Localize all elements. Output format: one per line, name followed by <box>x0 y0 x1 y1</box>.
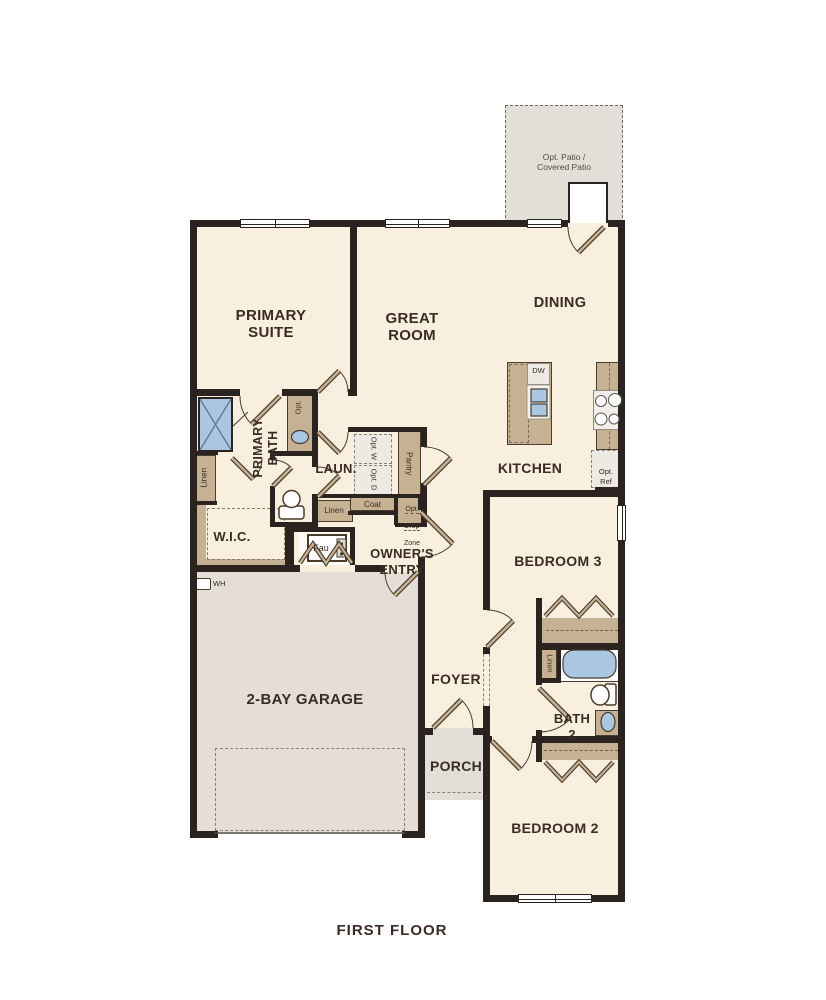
pantry-label: Pantry <box>404 434 413 494</box>
bifold-bedroom2-closet <box>545 762 613 780</box>
patio-label: Opt. Patio /Covered Patio <box>505 142 623 172</box>
span: 2 <box>568 727 576 742</box>
linen-bath2-label: Linen <box>545 646 554 680</box>
panel <box>318 371 339 392</box>
toilet-primary <box>279 491 304 520</box>
span: GREAT <box>386 310 439 327</box>
span: ENTRY <box>379 562 424 577</box>
panel <box>424 458 451 485</box>
opt-w-label: Opt. W <box>369 433 378 463</box>
primary-suite-label: PRIMARYSUITE <box>191 289 351 342</box>
span: Opt. <box>599 467 613 476</box>
span: PRIMARY <box>236 307 307 324</box>
chev-o <box>545 598 613 616</box>
kitchen-sink <box>527 385 550 419</box>
arc <box>568 227 579 253</box>
panel <box>318 476 339 497</box>
door-primary-suite <box>318 371 348 392</box>
door-front <box>433 700 473 728</box>
door-patio <box>568 227 604 253</box>
bifold-bedroom3-closet <box>545 598 613 616</box>
opt-d-label: Opt. D <box>369 464 378 494</box>
span: SUITE <box>248 324 294 341</box>
linen-primary-label: Linen <box>199 458 208 498</box>
span: BATH <box>266 431 280 466</box>
span: BATH <box>554 711 590 726</box>
dw-label: DW <box>527 367 550 376</box>
span: Zone <box>404 540 420 547</box>
bath2-label: BATH2 <box>532 696 612 742</box>
wh-label: WH <box>213 580 233 589</box>
span: Covered Patio <box>537 162 591 172</box>
primary-bath-label: PRIMARYBATH <box>236 388 268 508</box>
great-room-label: GREATROOM <box>352 292 472 345</box>
foyer-label: FOYER <box>406 671 506 688</box>
arc <box>424 447 451 458</box>
door-laundry <box>318 432 348 453</box>
opt-ref-label: Opt.Ref <box>591 458 621 486</box>
fau-label: Fau <box>308 543 334 554</box>
sink-primary-vanity <box>292 431 309 444</box>
coat-label: Coat <box>350 500 395 509</box>
door-bedroom3 <box>487 610 513 647</box>
arc <box>487 610 513 621</box>
cooktop-burners <box>595 394 622 426</box>
laundry-label: LAUN. <box>306 461 366 476</box>
door-pantry <box>424 447 451 485</box>
floor-plan-page: Opt. Patio /Covered Patio PRIMARYSUITE G… <box>0 0 826 1000</box>
span: Ref <box>600 477 612 486</box>
arc <box>461 700 473 728</box>
circle <box>609 394 622 407</box>
span: ROOM <box>388 327 436 344</box>
opt-vanity-label: Opt. <box>295 392 304 422</box>
span: Opt. Patio / <box>543 152 586 162</box>
bedroom3-label: BEDROOM 3 <box>478 553 638 570</box>
kitchen-label: KITCHEN <box>470 460 590 477</box>
linen-hall-label: Linen <box>315 506 353 515</box>
dining-label: DINING <box>500 295 620 312</box>
first-floor-title: FIRST FLOOR <box>292 922 492 940</box>
panel <box>487 621 513 647</box>
tub-basin <box>563 650 616 678</box>
chev-o <box>545 762 613 780</box>
span: PRIMARY <box>251 418 265 477</box>
porch-label: PORCH <box>406 758 506 775</box>
drop-zone-label: Opt. Drop Zone <box>397 498 427 548</box>
circle <box>609 414 619 424</box>
bedroom2-label: BEDROOM 2 <box>475 820 635 837</box>
span: Opt. <box>405 506 418 514</box>
panel <box>273 468 291 486</box>
arc <box>520 741 532 769</box>
fixt <box>283 491 300 508</box>
panel <box>579 227 605 253</box>
garage-label: 2-BAY GARAGE <box>205 691 405 709</box>
path <box>200 399 231 450</box>
arc <box>339 432 348 453</box>
span: OWNER'S <box>370 546 434 561</box>
circle <box>595 413 607 425</box>
panel <box>318 432 339 453</box>
circle <box>596 396 607 407</box>
blue <box>531 404 547 416</box>
span: Drop <box>404 523 419 531</box>
wic-label: W.I.C. <box>192 529 272 544</box>
arc <box>339 371 348 392</box>
panel <box>433 700 461 728</box>
blue <box>531 389 547 402</box>
